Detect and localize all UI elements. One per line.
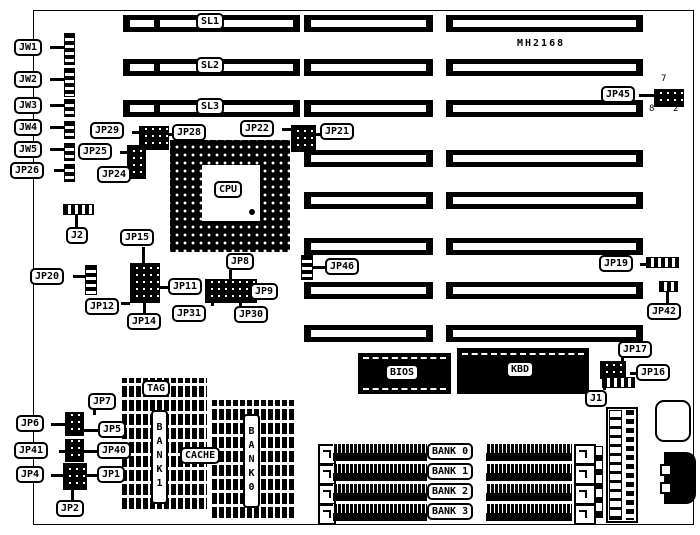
leader-line bbox=[50, 148, 64, 151]
leader-line bbox=[50, 126, 64, 129]
jumper-label-jw3: JW3 bbox=[14, 97, 42, 114]
jp22-jp21-jumper bbox=[291, 125, 316, 152]
leader-line bbox=[121, 302, 130, 305]
chip-dash bbox=[462, 353, 584, 355]
simm-latch bbox=[574, 504, 596, 525]
leader-line bbox=[142, 247, 145, 263]
jumper-label-jp15: JP15 bbox=[120, 229, 154, 246]
jumper-label-jp16: JP16 bbox=[636, 364, 670, 381]
jumper-label-jp14: JP14 bbox=[127, 313, 161, 330]
slot-bar bbox=[304, 150, 433, 167]
simm-bank2-label: BANK 2 bbox=[427, 483, 473, 500]
pin1-dot bbox=[249, 209, 255, 215]
leader-line bbox=[50, 78, 64, 81]
jumper-label-jw4: JW4 bbox=[14, 119, 42, 136]
leader-line bbox=[50, 46, 64, 49]
jp19-jumper bbox=[646, 257, 679, 268]
jumper-label-jp28: JP28 bbox=[172, 124, 206, 141]
jumper-label-jp21: JP21 bbox=[320, 123, 354, 140]
leader-line bbox=[73, 275, 85, 278]
chip-dash bbox=[363, 388, 446, 390]
jp4-jp1-jumper bbox=[63, 463, 87, 490]
jumper-label-jp40: JP40 bbox=[97, 442, 131, 459]
bios-chip-label: BIOS bbox=[385, 364, 419, 381]
jumper-label-jp20: JP20 bbox=[30, 268, 64, 285]
simm-socket bbox=[333, 484, 427, 501]
leader-line bbox=[54, 169, 64, 172]
simm-socket bbox=[486, 444, 572, 461]
jw5-jumper bbox=[64, 143, 75, 161]
jw2-jumper bbox=[64, 68, 75, 97]
cpu-label: CPU bbox=[214, 181, 242, 198]
jumper-label-jp41: JP41 bbox=[14, 442, 48, 459]
jp15-jumper-block bbox=[130, 263, 160, 303]
leader-line bbox=[229, 270, 232, 279]
cache-bank0-label: BANK0 bbox=[243, 414, 260, 508]
jp45-pin7-number: 7 bbox=[661, 74, 666, 84]
slot-bar bbox=[446, 192, 643, 209]
power-pins-right bbox=[626, 410, 634, 520]
simm-socket bbox=[333, 444, 427, 461]
slot-bar bbox=[446, 59, 643, 76]
jumper-label-jw1: JW1 bbox=[14, 39, 42, 56]
connector-notch bbox=[660, 464, 672, 476]
simm-bank0-label: BANK 0 bbox=[427, 443, 473, 460]
power-connector bbox=[606, 407, 638, 523]
slot-bar bbox=[446, 150, 643, 167]
jumper-label-jp19: JP19 bbox=[599, 255, 633, 272]
cache-bank1-label: BANK1 bbox=[151, 410, 168, 504]
slot-bar bbox=[446, 282, 643, 299]
jumper-label-jw5: JW5 bbox=[14, 141, 42, 158]
simm-latch bbox=[574, 444, 596, 465]
simm-socket bbox=[333, 504, 427, 521]
jumper-label-jp29: JP29 bbox=[90, 122, 124, 139]
jp41-jp40-jumper bbox=[65, 439, 84, 462]
jumper-label-jp31: JP31 bbox=[172, 305, 206, 322]
leader-line bbox=[51, 474, 63, 477]
jumper-label-jp46: JP46 bbox=[325, 258, 359, 275]
jumper-label-jp22: JP22 bbox=[240, 120, 274, 137]
simm-bank1-label: BANK 1 bbox=[427, 463, 473, 480]
jumper-label-jp7: JP7 bbox=[88, 393, 116, 410]
keyboard-connector bbox=[664, 452, 696, 504]
jp26-jumper bbox=[64, 164, 75, 182]
chip-dash bbox=[363, 357, 446, 359]
jp6-jp5-jumper bbox=[65, 412, 84, 436]
connector-notch bbox=[660, 482, 672, 494]
slot-bar bbox=[446, 325, 643, 342]
slot-bar bbox=[304, 238, 433, 255]
jumper-label-jp6: JP6 bbox=[16, 415, 44, 432]
jumper-label-jp25: JP25 bbox=[78, 143, 112, 160]
jumper-label-jp17: JP17 bbox=[618, 341, 652, 358]
jp45-pin2-number: 2 bbox=[673, 104, 678, 114]
leader-line bbox=[82, 450, 97, 453]
leader-line bbox=[50, 104, 64, 107]
jp20-jumper bbox=[85, 265, 97, 295]
jumper-label-jp26: JP26 bbox=[10, 162, 44, 179]
leader-line bbox=[93, 410, 96, 415]
mounting-outline bbox=[655, 400, 691, 442]
jumper-label-jp45: JP45 bbox=[601, 86, 635, 103]
simm-socket bbox=[486, 464, 572, 481]
kbd-chip-label: KBD bbox=[506, 361, 534, 378]
slot-bar bbox=[446, 238, 643, 255]
simm-socket bbox=[333, 464, 427, 481]
j2-jumper bbox=[63, 204, 94, 215]
jumper-label-jp2: JP2 bbox=[56, 500, 84, 517]
leader-line bbox=[639, 94, 654, 97]
jumper-label-jp4: JP4 bbox=[16, 466, 44, 483]
jp46-jumper bbox=[301, 255, 313, 280]
simm-socket bbox=[486, 484, 572, 501]
slot-label-sl1: SL1 bbox=[196, 13, 224, 30]
leader-line bbox=[75, 213, 78, 227]
jumper-label-jp9: JP9 bbox=[250, 283, 278, 300]
simm-bank3-label: BANK 3 bbox=[427, 503, 473, 520]
simm-socket bbox=[486, 504, 572, 521]
slot-bar bbox=[304, 15, 433, 32]
leader-line bbox=[311, 266, 325, 269]
simm-latch bbox=[574, 484, 596, 505]
motherboard-diagram: MH2168 SL1 SL2 SL3 JW1 JW2 JW3 JW4 JW5 J… bbox=[0, 0, 700, 535]
jumper-label-jp8: JP8 bbox=[226, 253, 254, 270]
jumper-label-j2: J2 bbox=[66, 227, 88, 244]
jumper-label-jp30: JP30 bbox=[234, 306, 268, 323]
slot-bar bbox=[446, 15, 643, 32]
cache-label: CACHE bbox=[180, 447, 220, 464]
jumper-label-jp11: JP11 bbox=[168, 278, 202, 295]
jp45-jumper bbox=[654, 89, 684, 107]
slot-bar bbox=[304, 325, 433, 342]
jp45-pin8-number: 8 bbox=[649, 104, 654, 114]
jumper-label-j1: J1 bbox=[585, 390, 607, 407]
jp42-jumper bbox=[659, 281, 678, 292]
slot-bar bbox=[304, 192, 433, 209]
jumper-label-jp12: JP12 bbox=[85, 298, 119, 315]
jumper-label-jp42: JP42 bbox=[647, 303, 681, 320]
slot-bar bbox=[304, 59, 433, 76]
slot-label-sl3: SL3 bbox=[196, 98, 224, 115]
slot-label-sl2: SL2 bbox=[196, 57, 224, 74]
power-pins-left bbox=[609, 410, 622, 520]
slot-bar bbox=[304, 100, 433, 117]
jw4-jumper bbox=[64, 121, 75, 139]
board-model-text: MH2168 bbox=[517, 38, 565, 49]
jp16-jumper bbox=[602, 377, 635, 388]
simm-latch bbox=[574, 464, 596, 485]
jumper-label-jp1: JP1 bbox=[97, 466, 125, 483]
jumper-label-jp5: JP5 bbox=[98, 421, 126, 438]
jumper-label-jp24: JP24 bbox=[97, 166, 131, 183]
slot-bar bbox=[304, 282, 433, 299]
tag-ram-label: TAG bbox=[142, 380, 170, 397]
jw3-jumper bbox=[64, 99, 75, 117]
leader-line bbox=[82, 429, 98, 432]
jw1-jumper bbox=[64, 33, 75, 65]
jumper-label-jw2: JW2 bbox=[14, 71, 42, 88]
leader-line bbox=[51, 423, 65, 426]
